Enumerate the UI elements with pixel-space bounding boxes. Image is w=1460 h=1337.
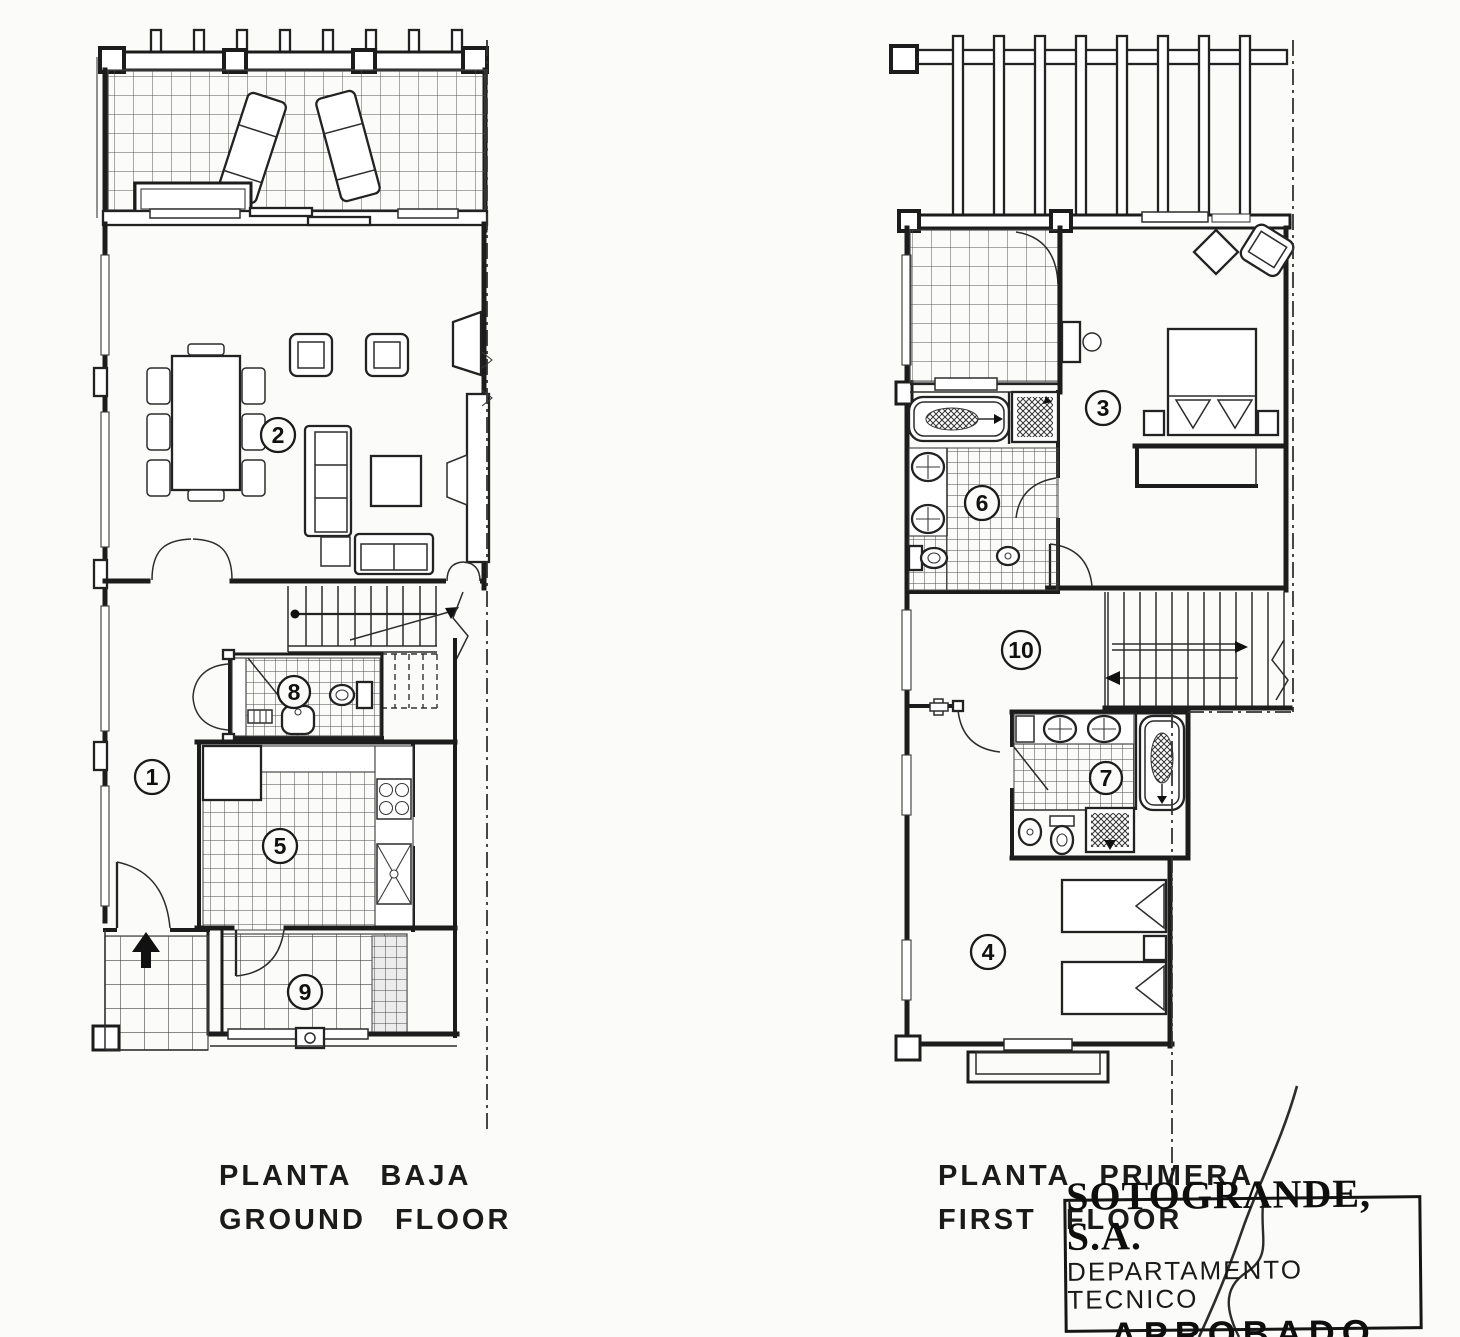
sink-icon [1044, 716, 1076, 742]
room-number-bathroom-2: 7 [1090, 762, 1122, 794]
sink-icon [1088, 716, 1120, 742]
radiator-icon [248, 710, 272, 723]
bathtub-icon [1140, 716, 1184, 810]
door-icon [117, 862, 170, 928]
first-floor-plan: 3 6 10 7 4 [891, 36, 1296, 1192]
terrace [97, 48, 487, 230]
svg-text:1: 1 [146, 764, 159, 790]
side-table-icon [1194, 230, 1238, 274]
porch [208, 930, 457, 1048]
stamp-company: SOTOGRANDE, S.A. [1066, 1173, 1419, 1257]
fridge-icon [203, 746, 261, 800]
stamp-department: DEPARTAMENTO TECNICO [1067, 1254, 1420, 1315]
kitchen-sink-icon [377, 844, 411, 904]
svg-text:9: 9 [299, 979, 312, 1005]
armchair-icon [290, 334, 332, 376]
svg-text:2: 2 [272, 422, 285, 448]
cabinet-icon [1016, 716, 1034, 742]
room-number-landing: 10 [1002, 631, 1040, 669]
door-icon [953, 701, 1000, 752]
armchair-icon [366, 334, 408, 376]
double-door-icon [152, 539, 232, 580]
approval-stamp: SOTOGRANDE, S.A. DEPARTAMENTO TECNICO AP… [1063, 1195, 1422, 1333]
sink-icon [282, 706, 314, 734]
pergola [891, 36, 1290, 231]
floor-plan-sheet: 1 2 5 8 9 [0, 0, 1460, 1337]
single-bed-icon [1062, 880, 1166, 932]
svg-text:8: 8 [288, 679, 301, 705]
ground-floor-title-es: PLANTA BAJA [219, 1160, 471, 1193]
sofa-icon [355, 534, 433, 574]
side-table-icon [321, 537, 350, 566]
nightstand-icon [1144, 936, 1166, 960]
ground-floor-plan: 1 2 5 8 9 [93, 30, 492, 1132]
double-bed-icon [1168, 329, 1256, 435]
svg-text:4: 4 [982, 939, 995, 965]
room-number-wc: 8 [278, 676, 310, 708]
room-number-porch: 9 [288, 975, 322, 1009]
bidet-icon [1019, 819, 1041, 845]
staircase-first [1105, 592, 1290, 708]
entry-patio [93, 862, 208, 1050]
room-number-bathroom: 6 [965, 486, 999, 520]
nightstand-icon [1258, 411, 1278, 435]
svg-text:6: 6 [976, 490, 989, 516]
stairs-below-dashed [381, 654, 437, 708]
landing [907, 699, 1000, 752]
stamp-status: APROBADO [1111, 1312, 1377, 1337]
chimney-breast [467, 394, 489, 562]
svg-text:5: 5 [274, 833, 287, 859]
svg-text:7: 7 [1100, 765, 1113, 791]
room-number-master-bedroom: 3 [1086, 391, 1120, 425]
newel-post-icon [291, 610, 300, 619]
floor-plans-drawing: 1 2 5 8 9 [0, 0, 1460, 1337]
ground-floor-title-en: GROUND FLOOR [219, 1204, 511, 1237]
svg-text:10: 10 [1008, 637, 1034, 663]
toilet-icon [1050, 816, 1074, 854]
bedroom-twin [896, 862, 1172, 1082]
shower-icon [1086, 808, 1134, 852]
dresser-icon [1062, 322, 1080, 362]
sink-icon [912, 505, 944, 533]
bidet-icon [997, 547, 1019, 565]
dining-table-icon [147, 344, 265, 501]
room-number-kitchen: 5 [263, 829, 297, 863]
sofa-icon [305, 426, 351, 536]
svg-text:3: 3 [1097, 395, 1110, 421]
nightstand-icon [1144, 411, 1164, 435]
single-bed-icon [1062, 962, 1166, 1014]
shelf-icon [935, 378, 997, 390]
drain-icon [296, 1028, 324, 1048]
break-line-icon [1272, 640, 1288, 700]
coffee-table-icon [371, 456, 421, 506]
sink-icon [912, 453, 944, 481]
room-number-hall: 1 [135, 760, 169, 794]
stool-icon [1083, 333, 1101, 351]
stove-icon [377, 779, 411, 819]
fireplace-icon [453, 312, 481, 375]
toilet-icon [909, 546, 947, 570]
double-door-icon [193, 650, 234, 743]
shower-icon [1012, 392, 1058, 442]
room-number-living: 2 [261, 418, 295, 452]
closet [1135, 446, 1286, 486]
balcony [968, 1052, 1108, 1082]
bathtub-icon [909, 397, 1009, 441]
room-number-bedroom: 4 [971, 935, 1005, 969]
